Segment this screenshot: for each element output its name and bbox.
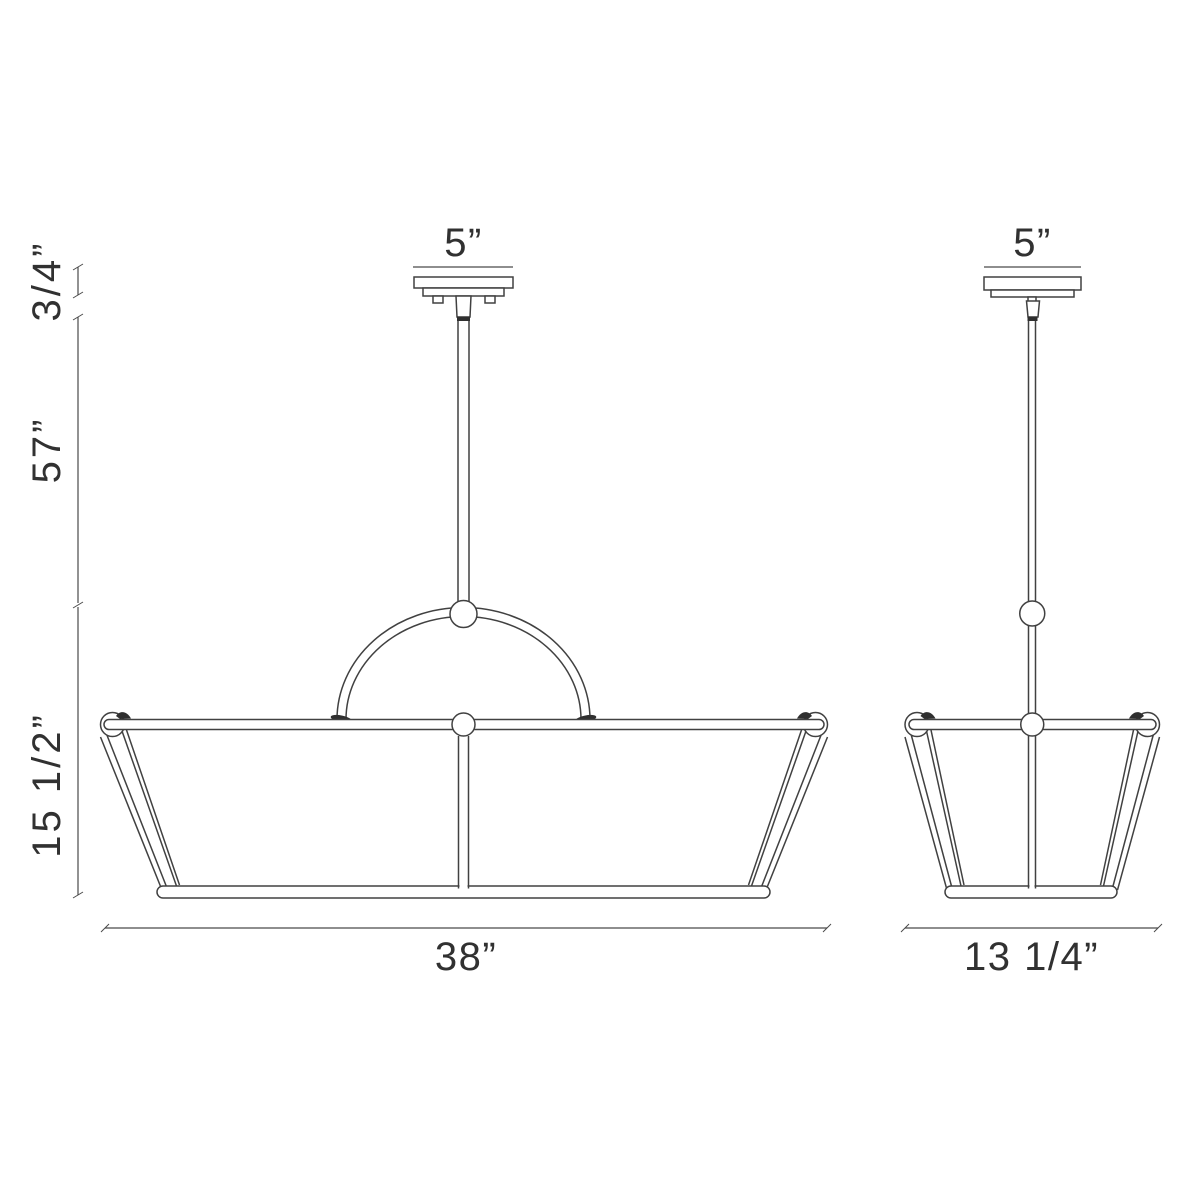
center-hub [1021,713,1044,736]
center-post [459,736,469,890]
side-width-dimension: 13 1/4” [901,924,1162,979]
stem-fitting [456,296,471,317]
side-width-label: 13 1/4” [964,935,1099,979]
stem-fitting [1027,301,1040,317]
canopy-side [984,267,1081,321]
canopy-height-label: 3/4” [25,241,69,322]
front-view: 5” 38” [101,221,832,979]
stem-collar [1028,317,1038,322]
shade-legs [101,730,828,890]
mounting-tab [433,296,443,303]
center-hub [452,713,475,736]
ball-joint [1020,601,1045,626]
canopy-front [413,267,513,321]
downrod [458,320,469,615]
dimension-drawing-page: 3/4” 57” 15 1/2” [0,0,1200,1200]
mounting-tab [485,296,495,303]
fixture-dimension-drawing: 3/4” 57” 15 1/2” [0,0,1200,1200]
rod-length-label: 57” [25,417,69,484]
ball-joint [450,601,477,628]
side-view: 5” 13 1/4” [901,221,1162,979]
stem-collar [457,317,470,322]
shade-legs [905,730,1160,890]
center-post [1029,736,1036,890]
front-width-label: 38” [435,935,497,979]
shade-height-label: 15 1/2” [25,712,69,858]
vertical-dimension-column: 3/4” 57” 15 1/2” [25,241,83,898]
front-width-dimension: 38” [101,924,831,979]
downrod [1029,320,1036,715]
side-canopy-width-label: 5” [1013,221,1052,265]
front-canopy-width-label: 5” [444,221,483,265]
